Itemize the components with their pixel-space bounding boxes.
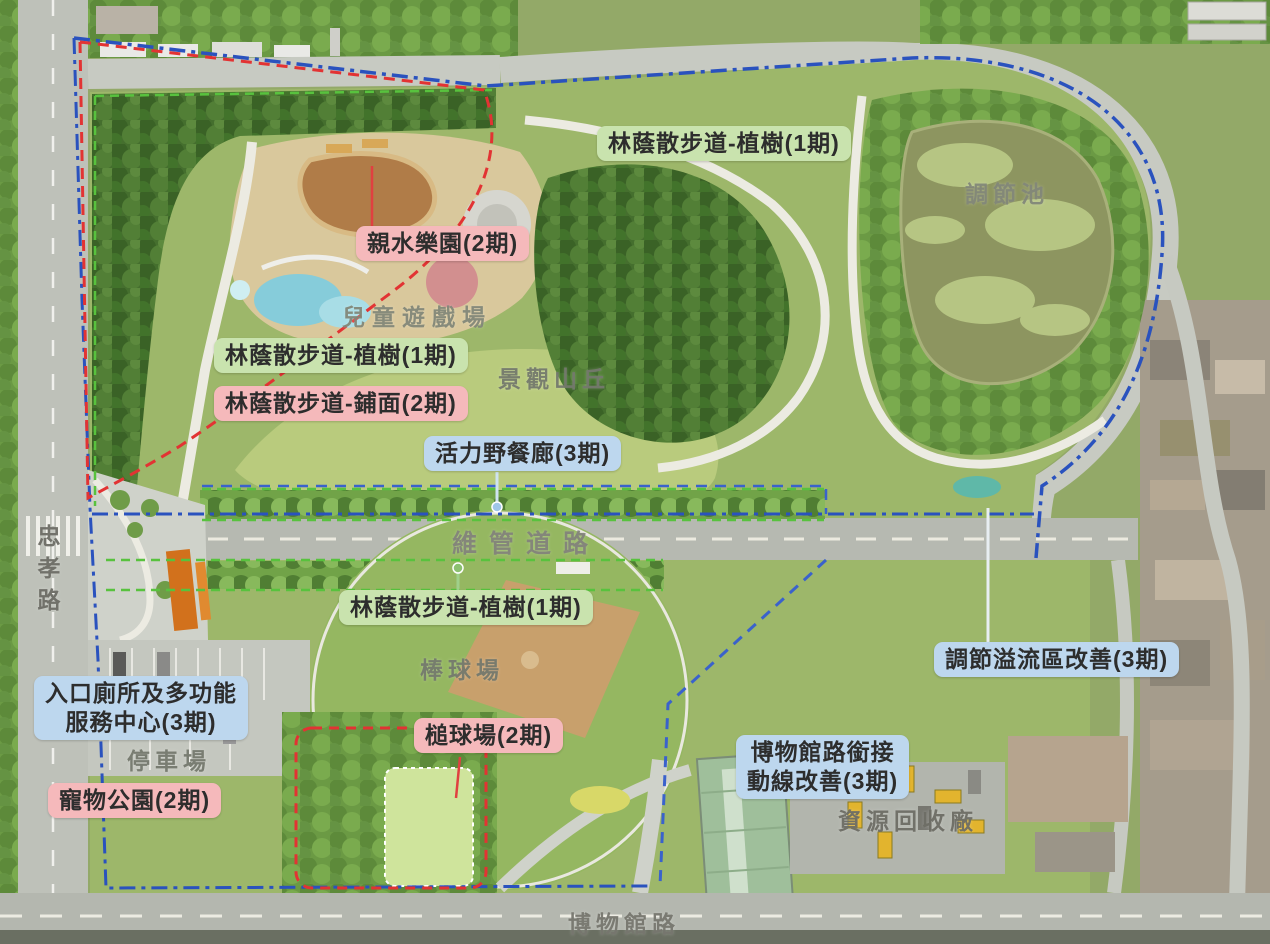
label-shade-walk-planting-phase1-lower: 林蔭散步道-植樹(1期) xyxy=(339,590,593,625)
label-pet-park-phase2: 寵物公園(2期) xyxy=(48,783,221,818)
place-children-playground: 兒童遊戲場 xyxy=(342,298,492,332)
label-entrance-service-center-phase3: 入口廁所及多功能 服務中心(3期) xyxy=(34,676,248,740)
place-recycling-plant: 資源回收廠 xyxy=(838,802,978,836)
place-detention-pond: 調節池 xyxy=(965,175,1049,209)
north-road xyxy=(88,70,500,74)
label-water-play-park-phase2: 親水樂園(2期) xyxy=(356,226,529,261)
place-museum-road: 博物館路 xyxy=(568,905,680,939)
label-picnic-corridor-phase3: 活力野餐廊(3期) xyxy=(424,436,621,471)
label-museum-road-link-phase3: 博物館路銜接 動線改善(3期) xyxy=(736,735,909,799)
label-shade-walk-planting-phase1-top: 林蔭散步道-植樹(1期) xyxy=(597,126,851,161)
label-line: 博物館路銜接 xyxy=(751,739,895,765)
west-tree-edge xyxy=(0,0,20,944)
label-line: 服務中心(3期) xyxy=(65,709,216,735)
place-chung-hsiao-road: 忠孝路 xyxy=(30,524,64,620)
place-maintenance-road: 維管道路 xyxy=(452,524,600,560)
place-parking-lot: 停車場 xyxy=(127,742,211,776)
label-shade-walk-planting-phase1-mid: 林蔭散步道-植樹(1期) xyxy=(214,338,468,373)
label-croquet-court-phase2: 槌球場(2期) xyxy=(414,718,563,753)
label-overflow-improvement-phase3: 調節溢流區改善(3期) xyxy=(934,642,1179,677)
label-shade-walk-paving-phase2: 林蔭散步道-鋪面(2期) xyxy=(214,386,468,421)
park-masterplan-map: 調節池 兒童遊戲場 景觀山丘 棒球場 停車場 資源回收廠 維管道路 忠孝路 博物… xyxy=(0,0,1270,944)
label-line: 動線改善(3期) xyxy=(747,768,898,794)
place-baseball-field: 棒球場 xyxy=(420,651,504,685)
overflow-pool xyxy=(953,476,1001,498)
label-line: 入口廁所及多功能 xyxy=(45,680,237,706)
place-lawn-hill: 景觀山丘 xyxy=(498,360,610,394)
